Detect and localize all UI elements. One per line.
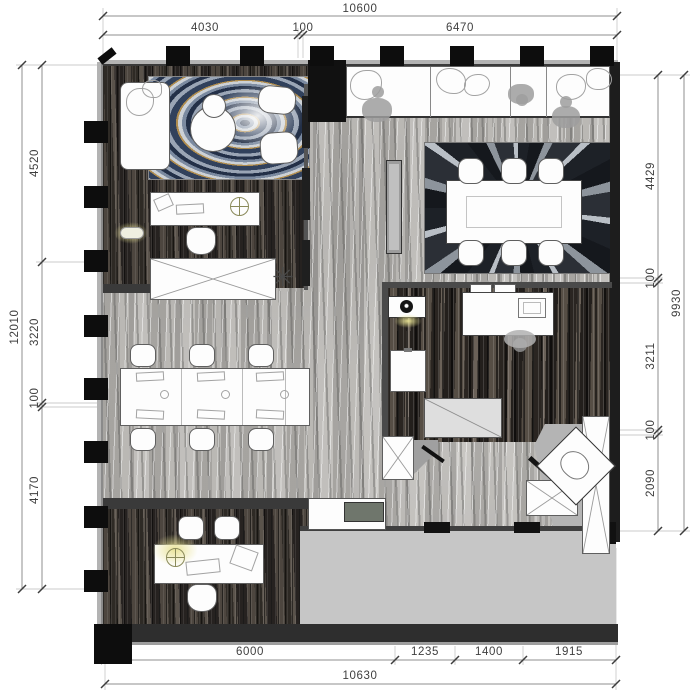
dim-top-seg-2: 6470 [446, 22, 474, 34]
dim-right-seg-0: 4429 [645, 162, 657, 190]
column [84, 186, 108, 208]
bottom-office-wall [103, 498, 308, 509]
column [84, 570, 108, 592]
conference-chair [538, 240, 564, 266]
task-chair [130, 428, 156, 451]
credenza-cabinet [150, 258, 276, 300]
column [84, 121, 108, 143]
dim-bottom-seg-3: 1915 [555, 646, 583, 658]
cabinet-divider [546, 67, 547, 117]
door-stop [424, 522, 450, 533]
dim-left-seg-2: 100 [29, 388, 41, 409]
keyboard-art [197, 371, 225, 381]
dim-right-seg-3: 100 [645, 420, 657, 441]
storage-cabinet [390, 350, 426, 392]
plant [586, 68, 612, 90]
person-figure [552, 106, 580, 128]
table-divider [242, 369, 243, 425]
tall-sideboard-top [389, 164, 399, 250]
storage-cabinet [382, 436, 414, 480]
keyboard-art [176, 203, 204, 214]
sink-basin [523, 302, 541, 314]
conference-chair [501, 240, 527, 266]
conference-table-inlay [466, 196, 562, 228]
keyboard-art [136, 371, 164, 381]
column [84, 441, 108, 463]
column [84, 315, 108, 337]
dim-bottom-seg-0: 6000 [236, 646, 264, 658]
person-figure [372, 86, 384, 98]
door-stop [514, 522, 540, 533]
plant-star-icon: ✳ [272, 264, 294, 290]
dim-top-seg-0: 4030 [191, 22, 219, 34]
dim-left-seg-0: 4520 [29, 149, 41, 177]
column [450, 46, 474, 66]
left-wall-line [101, 62, 103, 630]
corner-column [94, 624, 132, 664]
bench-cabinet [424, 398, 502, 438]
dim-bottom-seg-2: 1400 [475, 646, 503, 658]
dim-right-seg-1: 100 [645, 268, 657, 289]
dim-left-seg-1: 3220 [29, 318, 41, 346]
column [520, 46, 544, 66]
column [380, 46, 404, 66]
side-table [202, 94, 226, 118]
floor-plan-canvas: 10600 4030 100 6470 12010 4520 3220 100 … [0, 0, 700, 694]
task-chair [248, 428, 274, 451]
lounge-chair [257, 84, 298, 116]
keyboard-art [256, 409, 284, 419]
dim-left-seg-3: 4170 [29, 476, 41, 504]
mouse-art [280, 390, 289, 399]
person-figure [508, 84, 534, 104]
shear-wall-block [308, 60, 346, 122]
mouse-art [221, 390, 230, 399]
conference-chair [501, 158, 527, 184]
column [84, 378, 108, 400]
column [310, 46, 334, 66]
conference-chair [458, 240, 484, 266]
guest-chair [178, 516, 204, 540]
office-chair [186, 227, 216, 255]
keyboard-art [256, 371, 284, 381]
dim-right-overall: 9930 [671, 289, 683, 317]
column [166, 46, 190, 66]
person-figure [362, 98, 392, 122]
bottom-wall [106, 624, 618, 642]
keyboard-art [197, 409, 225, 419]
dim-bottom-overall: 10630 [343, 670, 378, 682]
column [84, 506, 108, 528]
task-chair [248, 344, 274, 367]
lounge-chair [259, 131, 299, 166]
plant [142, 80, 162, 98]
column [240, 46, 264, 66]
column [84, 250, 108, 272]
conference-chair [458, 158, 484, 184]
dim-top-seg-1: 100 [293, 22, 314, 34]
dim-left-overall: 12010 [9, 310, 21, 345]
table-divider [181, 369, 182, 425]
guest-chair [214, 516, 240, 540]
crosshair-symbol [166, 548, 185, 567]
corridor-floor [300, 530, 616, 628]
reception-counter-inset [344, 502, 384, 522]
column [590, 46, 614, 66]
mouse-art [160, 390, 169, 399]
task-chair [130, 344, 156, 367]
person-figure [504, 330, 536, 348]
dim-right-seg-2: 3211 [645, 342, 657, 369]
lamp-eye [400, 300, 413, 313]
crosshair-symbol [230, 197, 249, 216]
dim-top-overall: 10600 [343, 3, 378, 15]
cabinet-divider [430, 67, 431, 117]
glow-light [394, 314, 422, 328]
dim-right-seg-4: 2090 [645, 469, 657, 497]
conference-chair [538, 158, 564, 184]
keyboard-art [136, 409, 164, 419]
task-chair [189, 344, 215, 367]
office-chair [187, 584, 217, 612]
partition-mullion [302, 240, 310, 286]
task-chair [189, 428, 215, 451]
partition-mullion [302, 168, 310, 220]
cabinet-handle [404, 348, 412, 352]
dim-bottom-seg-1: 1235 [411, 646, 439, 658]
wall-lamp [120, 227, 144, 239]
bottom-wall-line [106, 642, 618, 645]
